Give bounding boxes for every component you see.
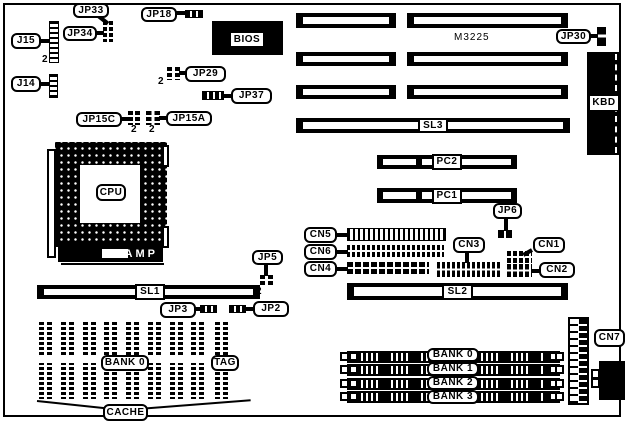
sl2-label: SL2 xyxy=(442,284,473,300)
jp6-text: JP6 xyxy=(498,206,517,216)
jp29-label: JP29 xyxy=(185,66,226,82)
cache-bank0-label: BANK 0 xyxy=(101,355,149,371)
jp15c-pin2-label: 2 xyxy=(131,124,137,135)
j14-pointer xyxy=(40,82,50,86)
cn6-pointer xyxy=(336,250,348,254)
cn4-label: CN4 xyxy=(304,261,337,277)
isa-slot-long-2 xyxy=(407,52,568,66)
cpu-label: CPU xyxy=(96,184,126,201)
amp-text: AMP xyxy=(125,248,158,260)
jp18-connector xyxy=(185,10,203,18)
jp15a-pin2-label: 2 xyxy=(149,124,155,135)
cache-bank0-text: BANK 0 xyxy=(105,358,145,368)
j14-pin-header xyxy=(49,74,58,98)
j15-label: J15 xyxy=(11,33,41,49)
cn6-connector xyxy=(347,245,444,257)
simm-bank2-label: BANK 2 xyxy=(427,376,479,390)
j15-pin-header xyxy=(49,21,59,63)
power-connector-pins-left xyxy=(570,319,578,403)
jp15a-label: JP15A xyxy=(166,111,212,126)
cn7-text: CN7 xyxy=(599,333,621,343)
pc1-key-divider xyxy=(416,192,422,199)
jp33-text: JP33 xyxy=(78,6,103,16)
jp30-label: JP30 xyxy=(556,29,591,44)
cache-chip-column xyxy=(83,322,96,399)
simm-end-tab xyxy=(340,365,349,374)
motherboard-diagram: JP33 J15 2 JP34 J14 JP18 BIOS 2 JP29 JP3… xyxy=(0,0,626,424)
jp15c-pointer xyxy=(121,117,129,121)
simm-bank3-label: BANK 3 xyxy=(427,390,479,404)
simm-bank1-label: BANK 1 xyxy=(427,362,479,376)
cn5-connector xyxy=(347,228,446,241)
jp33-label: JP33 xyxy=(73,3,109,18)
jp2-text: JP2 xyxy=(261,304,280,314)
simm-end-tab xyxy=(555,365,564,374)
isa-slot-stripe xyxy=(303,56,389,62)
pc1-text: PC1 xyxy=(437,191,458,201)
isa-slot-short-3 xyxy=(296,85,396,99)
connector-pin-hole xyxy=(593,380,598,386)
isa-slot-long-1 xyxy=(407,13,568,28)
jp30-text: JP30 xyxy=(561,32,586,42)
cn7-label: CN7 xyxy=(594,329,625,347)
jp29-pin2-label: 2 xyxy=(158,76,164,87)
cn6-text: CN6 xyxy=(310,247,332,257)
simm-bank0-text: BANK 0 xyxy=(433,350,473,360)
power-connector xyxy=(568,317,589,405)
simm-end-tab xyxy=(555,352,564,361)
cpu-tab-top xyxy=(162,145,169,167)
jp18-label: JP18 xyxy=(141,7,177,22)
jp29-text: JP29 xyxy=(193,69,218,79)
bios-label: BIOS xyxy=(230,32,264,47)
tag-label: TAG xyxy=(211,355,239,371)
jp34-pointer xyxy=(96,31,104,35)
cn4-connector xyxy=(347,262,429,274)
isa-slot-stripe xyxy=(303,89,389,95)
sl1-text: SL1 xyxy=(140,287,160,297)
bottom-right-connector xyxy=(599,361,625,400)
j14-text: J14 xyxy=(17,79,35,89)
jp34-text: JP34 xyxy=(67,29,92,39)
cn5-text: CN5 xyxy=(310,230,332,240)
jp34-label: JP34 xyxy=(63,26,97,41)
tag-text: TAG xyxy=(214,358,236,368)
jp2-connector xyxy=(229,305,246,313)
pc2-text: PC2 xyxy=(437,157,458,167)
isa-slot-stripe xyxy=(414,56,561,62)
cache-chip-column xyxy=(170,322,183,399)
simm-bank3-text: BANK 3 xyxy=(433,392,473,402)
jp15c-text: JP15C xyxy=(82,115,115,125)
sl3-label: SL3 xyxy=(418,118,448,133)
simm-end-tab xyxy=(340,352,349,361)
j14-label: J14 xyxy=(11,76,41,92)
isa-slot-short-2 xyxy=(296,52,396,66)
pc2-label: PC2 xyxy=(432,154,462,170)
cn2-connector xyxy=(507,264,532,277)
jp15c-jumper-block xyxy=(128,111,140,125)
cn2-label: CN2 xyxy=(539,262,575,278)
cn1-text: CN1 xyxy=(538,240,560,250)
cn3-label: CN3 xyxy=(453,237,485,253)
jp2-label: JP2 xyxy=(253,301,289,317)
amp-shadow-line xyxy=(61,263,164,265)
jp3-label: JP3 xyxy=(160,302,196,318)
simm-end-tab xyxy=(555,392,564,401)
cache-chip-column xyxy=(191,322,204,399)
jp18-pointer xyxy=(176,11,185,15)
cn1-label: CN1 xyxy=(533,237,565,253)
jp3-text: JP3 xyxy=(168,305,187,315)
sl1-label: SL1 xyxy=(135,284,165,300)
jp37-connector xyxy=(202,91,224,100)
sl2-text: SL2 xyxy=(448,287,468,297)
power-connector-pins-right xyxy=(579,319,587,403)
cn6-label: CN6 xyxy=(304,244,337,260)
cn3-pointer xyxy=(465,252,469,263)
simm-clip xyxy=(350,353,357,360)
cache-text: CACHE xyxy=(106,408,144,418)
pc2-key-divider xyxy=(416,159,422,165)
jp37-label: JP37 xyxy=(231,88,272,104)
jp6-jumper xyxy=(498,230,512,238)
simm-clip xyxy=(350,393,357,400)
j15-text: J15 xyxy=(17,36,35,46)
cn3-connector xyxy=(437,262,501,277)
amp-regulator: AMP xyxy=(58,245,163,262)
jp5-pointer xyxy=(264,264,268,276)
simm-clip xyxy=(350,380,357,387)
cn2-text: CN2 xyxy=(546,265,568,275)
isa-slot-stripe xyxy=(414,89,561,95)
cn5-label: CN5 xyxy=(304,227,337,243)
simm-clip xyxy=(350,366,357,373)
cache-label: CACHE xyxy=(103,404,148,421)
jp5-label: JP5 xyxy=(252,250,283,265)
j15-pointer xyxy=(40,39,50,43)
jp5-text: JP5 xyxy=(258,253,277,263)
jp30-connector xyxy=(597,27,606,46)
cn4-pointer xyxy=(336,267,348,271)
cpu-side-bar xyxy=(47,149,56,258)
jp6-label: JP6 xyxy=(493,203,522,219)
cache-chip-column xyxy=(148,322,161,399)
simm-end-tab xyxy=(340,392,349,401)
jp37-text: JP37 xyxy=(239,91,264,101)
jp3-connector xyxy=(200,305,217,313)
simm-bank1-text: BANK 1 xyxy=(433,364,473,374)
jp15a-jumper-block xyxy=(146,111,160,125)
bios-text: BIOS xyxy=(234,35,260,45)
jp18-text: JP18 xyxy=(146,10,171,20)
chipset-text-m3225: M3225 xyxy=(454,32,490,43)
simm-end-tab xyxy=(555,379,564,388)
cn4-text: CN4 xyxy=(310,264,332,274)
cpu-text: CPU xyxy=(100,188,123,198)
kbd-label: KBD xyxy=(589,95,619,111)
simm-bank2-text: BANK 2 xyxy=(433,378,473,388)
isa-slot-stripe xyxy=(303,17,389,24)
kbd-text: KBD xyxy=(592,98,615,108)
sl3-text: SL3 xyxy=(423,121,443,131)
isa-slot-short-1 xyxy=(296,13,396,28)
cache-chip-column xyxy=(39,322,52,399)
cache-chip-column xyxy=(61,322,74,399)
simm-bank0-label: BANK 0 xyxy=(427,348,479,362)
isa-slot-stripe xyxy=(414,17,561,24)
jp15c-label: JP15C xyxy=(76,112,122,127)
j15-pin2-label: 2 xyxy=(42,54,48,65)
cn5-pointer xyxy=(336,233,348,237)
cn3-text: CN3 xyxy=(458,240,480,250)
connector-pin-hole xyxy=(593,371,598,377)
jp15a-text: JP15A xyxy=(172,114,205,124)
pc1-label: PC1 xyxy=(432,188,462,204)
isa-slot-long-3 xyxy=(407,85,568,99)
cpu-tab-bottom xyxy=(162,226,169,248)
jp5-pin2-label: 2 xyxy=(256,286,262,297)
jp6-pointer xyxy=(504,218,508,231)
simm-end-tab xyxy=(340,379,349,388)
